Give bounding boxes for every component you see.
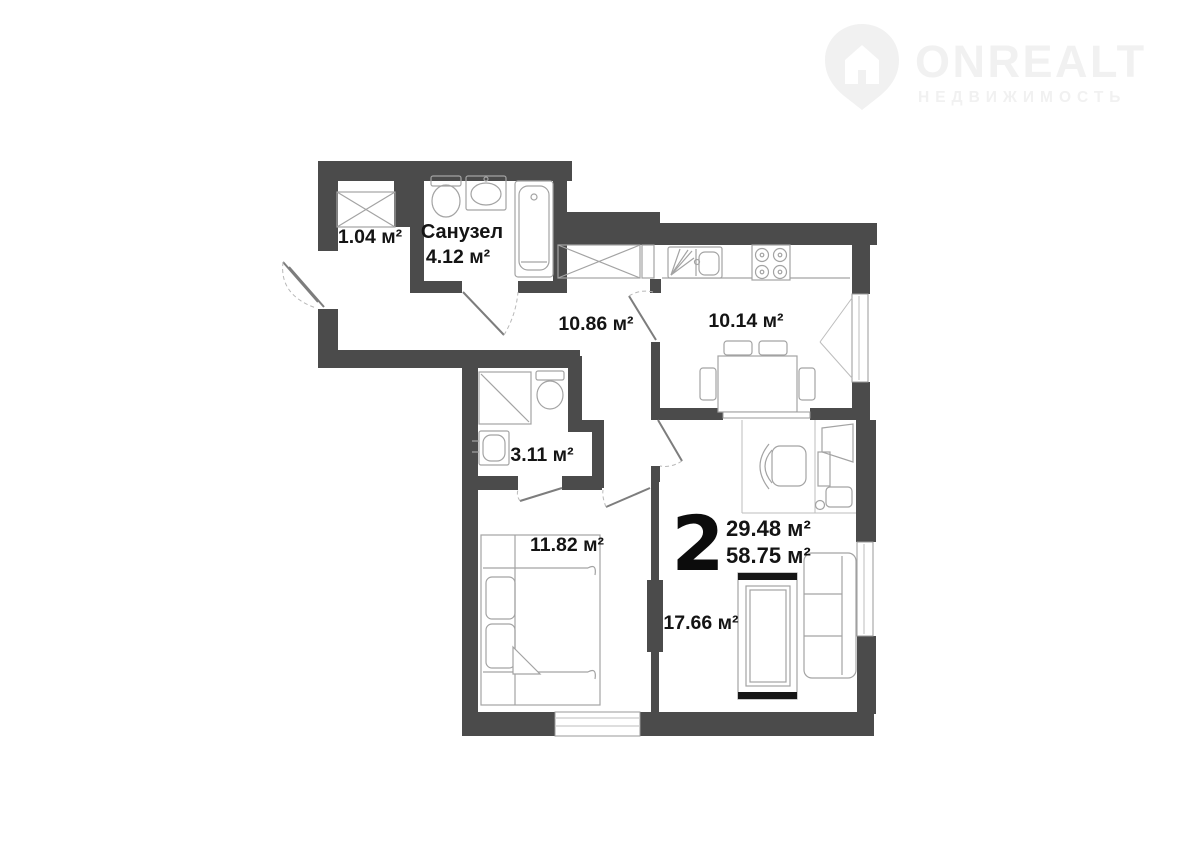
hallway-wardrobe: [558, 245, 654, 278]
bathroom-area-label: 4.12 м²: [426, 246, 491, 268]
kitchen-table: [700, 341, 815, 412]
living-room-window: [857, 542, 873, 636]
living-area-total: 29.48 м²: [726, 516, 811, 541]
hallway-area-label: 10.86 м²: [558, 313, 634, 335]
living-room-table: [738, 573, 797, 699]
monitor: [822, 424, 853, 462]
shower-cabin: [479, 372, 531, 424]
sofa: [804, 553, 856, 678]
logo: ONREALT НЕДВИЖИМОСТЬ: [825, 24, 1147, 110]
shower-room-area-label: 3.11 м²: [510, 444, 574, 466]
logo-brand-text: ONREALT: [915, 36, 1147, 87]
bathroom-toilet: [431, 176, 461, 217]
kitchen-stove: [752, 245, 790, 280]
pc-tower: [818, 452, 830, 486]
kitchen-window: [820, 294, 868, 382]
floor-plan-canvas: ONREALT НЕДВИЖИМОСТЬ: [0, 0, 1200, 850]
bed: [481, 535, 600, 705]
bedroom-area-label: 11.82 м²: [530, 534, 605, 556]
printer: [816, 487, 853, 510]
living-room-area-label: 17.66 м²: [663, 612, 739, 634]
floor-plan-page: ONREALT НЕДВИЖИМОСТЬ: [0, 0, 1200, 850]
desk-zone: [742, 420, 856, 513]
bathtub: [515, 181, 553, 277]
shower-room-door: [517, 488, 562, 501]
office-chair: [760, 444, 806, 489]
kitchen-area-label: 10.14 м²: [708, 310, 784, 332]
kitchen-sink: [668, 247, 722, 278]
closet-wardrobe: [337, 192, 395, 227]
kitchen-living-opening: [723, 412, 810, 418]
bathroom-name-label: Санузел: [421, 221, 503, 243]
closet-area-label: 1.04 м²: [338, 226, 403, 248]
entrance-door: [283, 262, 324, 308]
living-room-door: [658, 420, 682, 466]
bedroom-window: [555, 712, 640, 736]
shower-room-toilet: [536, 371, 564, 409]
total-area: 58.75 м²: [726, 543, 811, 568]
bathroom-door: [463, 292, 518, 335]
bathroom-sink: [466, 176, 506, 210]
rooms-count: 2: [672, 499, 725, 588]
logo-tagline-text: НЕДВИЖИМОСТЬ: [918, 89, 1126, 106]
bedroom-door: [603, 488, 650, 507]
